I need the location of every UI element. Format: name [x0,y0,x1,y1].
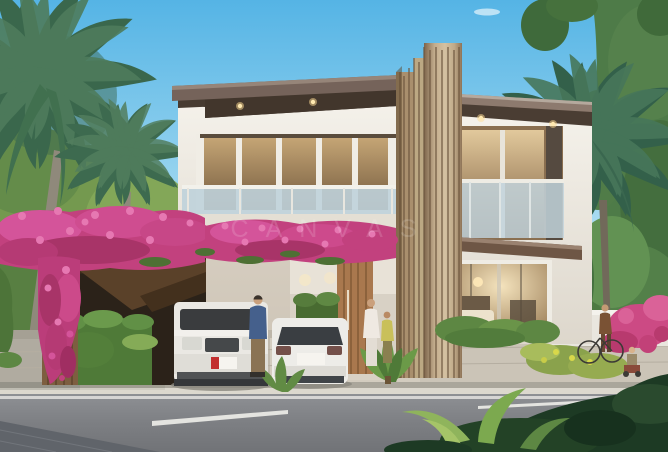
svg-text:CANVAS: CANVAS [231,215,434,243]
